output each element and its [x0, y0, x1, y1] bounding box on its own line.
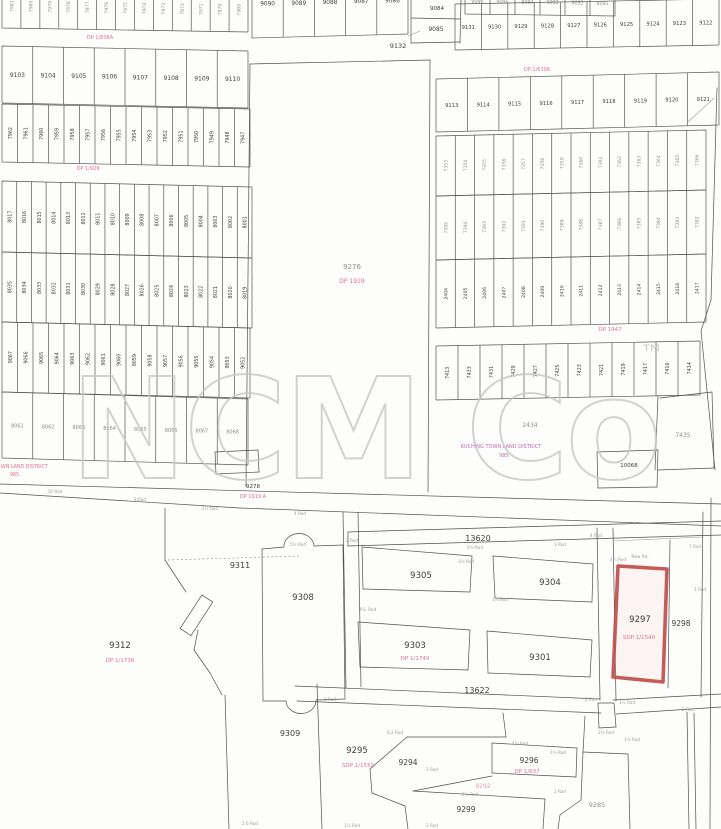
lot-number: 7385	[637, 218, 643, 230]
lot-number: 8033	[37, 282, 43, 294]
lot-number: 2413	[617, 284, 623, 296]
parcel-label: 13622	[464, 686, 489, 695]
dimension-label: 5½ Rod	[290, 542, 306, 547]
parcel-label: 7435	[675, 432, 690, 439]
highlighted-parcel-number: 9297	[629, 615, 651, 625]
lot-number: 7961	[23, 127, 29, 139]
lot-number: 9105	[71, 73, 86, 80]
parcel-label: 9296	[519, 756, 538, 765]
lot-band-row-79xx: 7962796179607959795879577956795579547953…	[2, 104, 250, 167]
dimension-label: 4¾ Rod	[610, 557, 626, 562]
lot-number: 7947	[240, 132, 246, 144]
lot-number: 2409	[540, 286, 546, 298]
lot-number: 9089	[291, 1, 306, 7]
boundary-line	[408, 31, 420, 36]
lot-number: 7416	[665, 363, 671, 375]
lot-number: 7360	[579, 157, 585, 169]
lot-number: 8008	[140, 214, 146, 226]
lot-number: 9106	[102, 74, 117, 81]
boundary-line	[687, 712, 689, 829]
lot-number: 7954	[132, 130, 138, 142]
lot-number: 7357	[521, 158, 527, 170]
lot-number: 9127	[567, 23, 580, 29]
dimension-label: 3½ Rod	[458, 559, 474, 564]
lot-number: 8028	[110, 284, 116, 296]
boundary-line	[493, 556, 495, 598]
watermark-tm-symbol: ™	[640, 340, 664, 368]
lot-number: 7953	[147, 130, 153, 142]
boundary-line	[405, 806, 408, 829]
lot-number: 9121	[697, 97, 710, 103]
lot-band-row-9103: 91039104910591069107910891099110	[2, 46, 248, 108]
lot-number: 7952	[163, 130, 169, 142]
boundary-line	[599, 727, 616, 728]
lot-number: 8017	[7, 211, 13, 223]
boundary-line	[362, 547, 363, 589]
dimension-label: 2 Rod	[426, 823, 438, 828]
lot-number: 7972	[180, 3, 186, 15]
lot-number: 7958	[70, 128, 76, 140]
boundary-line	[710, 498, 711, 829]
boundary-line	[487, 631, 488, 673]
boundary-line	[628, 754, 630, 829]
lot-number: 7386	[617, 218, 623, 230]
lot-number: 8010	[110, 213, 116, 225]
lot-number: 7391	[521, 220, 527, 232]
plan-label: DP 1/838A	[87, 35, 114, 41]
boundary-line	[194, 650, 210, 673]
lot-band-row-80xx-a: 8017801680158014801380128011801080098008…	[2, 181, 252, 258]
dimension-label: 3 Rod	[554, 542, 566, 547]
lot-number: 7356	[502, 159, 508, 171]
boundary-line	[711, 88, 717, 300]
boundary-line	[411, 42, 460, 43]
lot-number: 7973	[161, 3, 167, 15]
dimension-label: 1¾ Rod	[492, 597, 508, 602]
boundary-line	[581, 752, 583, 800]
boundary-line	[492, 743, 577, 748]
dimension-label: 2 Rod	[554, 789, 566, 794]
boundary-line	[590, 640, 592, 677]
parcel-label: 13620	[465, 534, 490, 543]
parcel-label: 9285	[589, 801, 606, 809]
lot-number: 2412	[598, 284, 604, 296]
boundary-line	[503, 713, 506, 737]
dimension-label: 1 Rod	[694, 587, 706, 592]
lot-band-row-80xx-b: 8035803480338032803180308029802880278026…	[2, 252, 252, 328]
lot-number: 7353	[444, 160, 450, 172]
lot-number: 7955	[116, 129, 122, 141]
parcel-label: 9294	[398, 758, 417, 767]
lot-number: 8031	[66, 282, 72, 294]
boundary-line	[372, 793, 405, 806]
lot-number: 8004	[199, 215, 205, 227]
lot-number: 9125	[620, 22, 633, 28]
lot-number: 9126	[594, 22, 607, 28]
lot-number: 7382	[694, 216, 700, 228]
lot-number: 8022	[199, 286, 205, 298]
lot-number: 7363	[637, 156, 643, 168]
lot-number: 7948	[225, 131, 231, 143]
boundary-line	[317, 684, 322, 829]
watermark-text: NCM Co	[70, 349, 659, 512]
dimension-label: 1½ Rod	[344, 823, 360, 828]
lot-number: 7362	[617, 156, 623, 168]
boundary-line	[614, 703, 616, 727]
lot-number: 8026	[140, 284, 146, 296]
boundary-line	[362, 547, 472, 556]
boundary-line	[363, 589, 470, 592]
boundary-line	[297, 701, 601, 713]
lot-band-row-24xx: 2404240524062407240824092410241124122413…	[436, 254, 706, 328]
boundary-line	[210, 673, 222, 695]
lot-number: 7969	[237, 4, 243, 16]
lot-number: 9103	[10, 72, 25, 79]
lot-band-row-9090: 90909089908890879086	[252, 0, 408, 38]
parcel-label: 9292	[475, 783, 490, 790]
plan-label: DP 1/1749	[401, 656, 430, 662]
lot-number: 9122	[699, 20, 712, 26]
lot-number: 9093	[546, 0, 558, 6]
lot-number: 7387	[598, 218, 604, 230]
lot-number: 8012	[81, 212, 87, 224]
boundary-line	[597, 528, 600, 700]
lot-number: 9109	[194, 76, 209, 83]
parcel-label: 9301	[529, 653, 551, 663]
parcel-label: 9299	[456, 805, 475, 814]
lot-number: 9091	[596, 1, 608, 7]
boundary-line	[694, 713, 696, 829]
dimension-label: 2½ Rod	[462, 792, 478, 797]
boundary-line	[701, 512, 703, 697]
lot-number: 7971	[199, 3, 205, 15]
lot-number: 7962	[8, 127, 14, 139]
lot-number: 7355	[482, 159, 488, 171]
lot-number: 9065	[39, 352, 45, 364]
lot-number: 9107	[133, 74, 148, 81]
lot-number: 9130	[488, 24, 501, 30]
boundary-line	[558, 815, 560, 829]
plan-label: 985	[10, 472, 19, 478]
lot-number: 8030	[81, 283, 87, 295]
plan-label: DP 1919	[339, 278, 365, 285]
lot-number: 7975	[123, 2, 129, 14]
lot-number: 8020	[228, 286, 234, 298]
boundary-line	[360, 667, 468, 670]
lot-number: 7393	[482, 221, 488, 233]
lot-number: 2404	[444, 288, 450, 300]
lot-number: 7414	[687, 362, 693, 374]
lot-number: 8007	[154, 214, 160, 226]
dimension-label: 4¾ Rod	[512, 741, 528, 746]
dimension-label: 10 Rod	[48, 489, 63, 494]
dimension-label: 6.2 Rod	[387, 730, 403, 735]
dimension-label: 1¾ Rod	[624, 737, 640, 742]
parcel-label: 9303	[404, 641, 426, 651]
boundary-line	[225, 695, 229, 829]
lot-number: 9088	[323, 0, 338, 6]
plan-label: SDP 1/1552	[342, 763, 374, 769]
lot-band-row-73xx-b: 7395739473937392739173907389738873877386…	[436, 190, 706, 260]
lot-number: 7974	[142, 2, 148, 14]
small-rotated-reserve	[180, 595, 213, 636]
boundary-line	[411, 18, 460, 19]
lot-number: 2408	[521, 286, 527, 298]
lot-number: 9128	[541, 23, 554, 29]
parcel-label: 9298	[671, 619, 690, 628]
dimension-label: 1¾ Rod	[550, 750, 566, 755]
lot-number: 9066	[23, 351, 29, 363]
lot-number: 7976	[104, 2, 110, 14]
lot-number: 7358	[540, 158, 546, 170]
parcel-label: 9305	[410, 571, 432, 581]
lot-number: 7970	[218, 4, 224, 16]
lot-number: 2410	[559, 285, 565, 297]
lot-number: 9120	[665, 98, 678, 104]
lot-number: 8016	[22, 211, 28, 223]
lot-number: 8061	[11, 423, 24, 429]
boundary-line	[348, 521, 721, 532]
boundary-line	[543, 799, 545, 829]
parcel-label: 9309	[280, 729, 300, 738]
lot-number: 9123	[673, 21, 686, 27]
lot-number: 7959	[54, 128, 60, 140]
lot-number: 8024	[169, 285, 175, 297]
boundary-line	[583, 752, 628, 754]
lot-number: 2417	[694, 282, 700, 294]
lot-number: 7388	[579, 219, 585, 231]
lot-number: 8009	[125, 213, 131, 225]
dimension-label: 3 Rod	[324, 697, 336, 702]
lot-number: 7980	[28, 1, 34, 13]
boundary-line	[668, 540, 670, 688]
dimension-label: 2 Rod	[585, 697, 597, 702]
lot-number: 7960	[39, 128, 45, 140]
dimension-label: 7 Rod	[689, 544, 701, 549]
boundary-line	[370, 769, 372, 793]
lot-number: 9115	[508, 102, 521, 108]
lot-number: 7389	[559, 219, 565, 231]
lot-number: 7359	[559, 157, 565, 169]
lot-number: 9090	[260, 2, 275, 8]
lot-band-row-913x: 9131913091299128912791269125912491239122	[455, 0, 719, 50]
lot-number: 8023	[184, 285, 190, 297]
boundary-line	[592, 564, 593, 602]
lot-number: 9087	[354, 0, 369, 5]
boundary-line	[560, 800, 581, 815]
lot-number: 7364	[656, 155, 662, 167]
parcel-label: 9311	[230, 561, 250, 570]
lot-number: 8015	[37, 211, 43, 223]
lot-number: 9116	[539, 101, 552, 107]
parcel-label: 9312	[109, 641, 131, 651]
lot-number: 9129	[514, 24, 527, 30]
boundary-line	[495, 598, 592, 602]
lot-band-row-911x: 911391149115911691179118911991209121	[436, 72, 719, 132]
boundary-line	[165, 560, 186, 592]
boundary-line	[598, 703, 599, 728]
plan-label: WN LAND DISTRICT	[1, 464, 48, 470]
lot-number: 7956	[101, 129, 107, 141]
lot-number: 8013	[66, 212, 72, 224]
boundary-line	[295, 686, 600, 699]
lot-number: 7957	[85, 129, 91, 141]
lot-number: 7366	[694, 154, 700, 166]
dimension-label: 2 Rod	[682, 707, 694, 712]
lot-number: 8032	[51, 282, 57, 294]
lot-number: 2414	[637, 284, 643, 296]
parcel-label: 9085	[428, 26, 443, 33]
lot-number: 9124	[646, 21, 660, 27]
lot-number: 9117	[571, 100, 584, 106]
lot-number: 8005	[184, 215, 190, 227]
lot-number: 2415	[656, 283, 662, 295]
dimension-label: New Rd.	[631, 554, 648, 559]
plan-label: DP 1/637	[514, 769, 540, 775]
plan-label: DP 1/6306	[524, 67, 550, 73]
lot-number: 8006	[169, 214, 175, 226]
parcel-label: 9276	[343, 263, 361, 271]
dimension-label: 2.6 Rod	[242, 821, 258, 826]
lot-number: 7981	[9, 0, 15, 12]
lot-number: 8029	[96, 283, 102, 295]
lot-number: 8021	[213, 286, 219, 298]
plan-label: DP 1/929	[77, 166, 100, 172]
boundary-line	[576, 748, 577, 777]
parcel-label: 9304	[539, 578, 561, 588]
parcel-label: 9308	[292, 593, 314, 603]
boundary-line	[660, 392, 712, 398]
dimension-label: 3 Rod	[426, 767, 438, 772]
lot-number: 7384	[656, 217, 662, 229]
scanned-cadastral-map-page: 7981798079797978797779767975797479737972…	[0, 0, 721, 829]
lot-number: 7383	[675, 217, 681, 229]
lot-number: 9108	[163, 75, 178, 82]
parcel-label: 9084	[430, 6, 444, 12]
lot-number: 8027	[125, 284, 131, 296]
boundary-line	[493, 556, 593, 564]
lot-number: 7395	[444, 222, 450, 234]
parcel-label: 9132	[390, 42, 407, 50]
lot-number: 2406	[482, 287, 488, 299]
lot-number: 7365	[675, 155, 681, 167]
dimension-label: 2 Rod	[346, 538, 358, 543]
lot-number: 7392	[502, 221, 508, 233]
lot-number: 7390	[540, 220, 546, 232]
dimension-label: P.S. Rod	[360, 607, 377, 612]
boundary-line	[468, 630, 470, 670]
boundary-line	[358, 622, 470, 630]
lot-number: 9131	[462, 25, 475, 31]
lot-number: 2411	[579, 285, 585, 297]
boundary-line	[348, 535, 721, 546]
boundary-line	[168, 556, 300, 560]
dimension-label: 5¼ Rod	[467, 545, 483, 550]
dimension-label: 2½ Rod	[598, 730, 614, 735]
boundary-line	[616, 707, 721, 714]
lot-number: 8062	[42, 424, 55, 430]
boundary-line	[488, 673, 590, 677]
lot-number: 9118	[602, 99, 615, 105]
lot-number: 8014	[51, 212, 57, 224]
lot-number: 8011	[96, 213, 102, 225]
lot-number: 8035	[7, 281, 13, 293]
lot-number: 8001	[243, 216, 249, 228]
lot-number: 7979	[47, 1, 53, 13]
lot-number: 7977	[85, 1, 91, 13]
lot-number: 9114	[477, 102, 491, 108]
boundary-line	[487, 631, 592, 640]
lot-number: 7361	[598, 156, 604, 168]
lot-number: 9064	[54, 352, 60, 364]
lot-number: 2405	[463, 287, 469, 299]
lot-band-top-left-cut-row: 7981798079797978797779767975797479737972…	[2, 0, 248, 32]
lot-number: 8025	[154, 285, 160, 297]
lot-number: 8034	[22, 281, 28, 293]
boundary-line	[583, 716, 585, 752]
dimension-label: 4 Rod	[590, 533, 602, 538]
boundary-line	[701, 331, 715, 470]
lot-number: 9104	[40, 72, 55, 79]
lot-number: 7978	[66, 1, 72, 13]
boundary-line	[250, 60, 430, 64]
dimension-label: 1½ Rod	[619, 700, 635, 705]
lot-band-row-73xx-a: 7353735473557356735773587359736073617362…	[436, 130, 706, 196]
plan-label: DP 1/1736	[106, 658, 135, 664]
plan-label: DP 1947	[598, 327, 622, 333]
lot-number: 2416	[675, 283, 681, 295]
parcel-label: 9295	[346, 746, 368, 756]
lot-number: 9113	[445, 103, 458, 109]
lot-number: 9067	[8, 351, 14, 363]
lot-number: 9110	[225, 76, 240, 83]
lot-number: 7950	[194, 131, 200, 143]
lot-number: 7354	[463, 159, 469, 171]
boundary-line	[413, 791, 545, 799]
lot-number: 9086	[385, 0, 400, 4]
boundary-line	[658, 468, 714, 470]
lot-number: 7949	[209, 131, 215, 143]
lot-number: 8003	[213, 216, 219, 228]
cadastral-map[interactable]: 7981798079797978797779767975797479737972…	[0, 0, 721, 829]
lot-number: 2407	[502, 287, 508, 299]
highlighted-parcel-plan: SDP 1/1540	[623, 635, 656, 641]
ncmco-watermark: NCM Co™	[70, 340, 664, 512]
lot-number: 7394	[463, 221, 469, 233]
boundary-line	[194, 630, 198, 650]
lot-number: 9119	[634, 98, 647, 104]
boundary-line	[460, 0, 461, 43]
lot-number: 9096	[471, 0, 483, 5]
lot-number: 7951	[178, 130, 184, 142]
lot-number: 8002	[228, 216, 234, 228]
